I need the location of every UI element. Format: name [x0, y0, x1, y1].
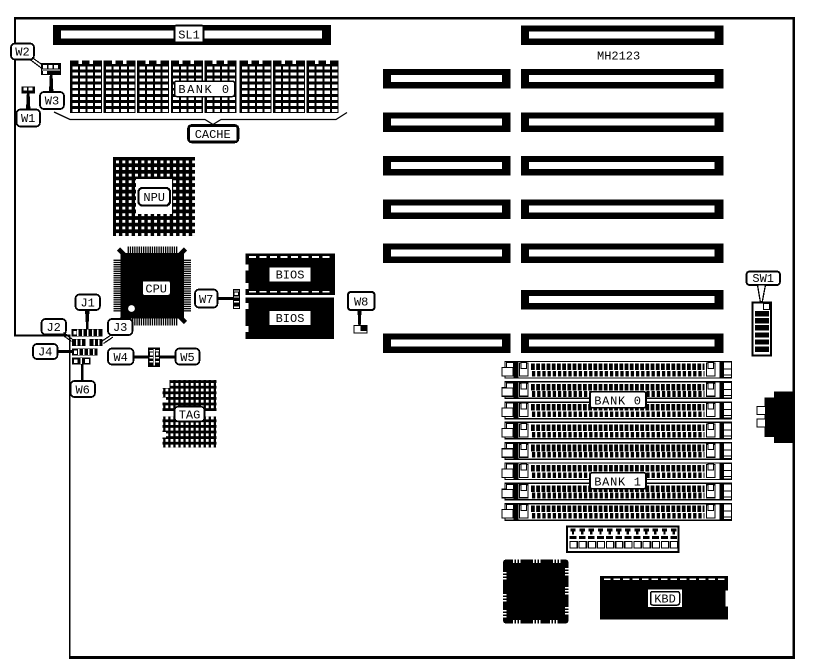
svg-text:W3: W3 [45, 95, 59, 109]
svg-text:CPU: CPU [145, 283, 167, 297]
svg-text:W1: W1 [21, 112, 35, 126]
svg-text:NPU: NPU [143, 191, 165, 205]
svg-text:TAG: TAG [179, 409, 201, 423]
svg-text:W5: W5 [180, 351, 194, 365]
svg-text:W6: W6 [75, 384, 89, 398]
svg-text:J3: J3 [113, 321, 127, 335]
svg-text:W7: W7 [199, 293, 213, 307]
svg-text:BIOS: BIOS [276, 312, 305, 326]
svg-text:BANK 0: BANK 0 [178, 83, 230, 97]
svg-text:SW1: SW1 [752, 272, 774, 286]
svg-text:W4: W4 [113, 351, 127, 365]
svg-text:J1: J1 [80, 297, 94, 311]
svg-text:J4: J4 [38, 346, 52, 360]
svg-text:MH2123: MH2123 [597, 50, 640, 64]
svg-text:SL1: SL1 [178, 29, 200, 43]
svg-text:CACHE: CACHE [195, 128, 231, 142]
svg-text:J2: J2 [46, 321, 60, 335]
svg-text:W2: W2 [15, 46, 29, 60]
svg-text:W8: W8 [354, 296, 368, 310]
svg-text:BIOS: BIOS [276, 269, 305, 283]
svg-text:BANK 1: BANK 1 [594, 475, 641, 489]
svg-text:BANK 0: BANK 0 [594, 394, 641, 408]
svg-text:KBD: KBD [654, 593, 676, 607]
